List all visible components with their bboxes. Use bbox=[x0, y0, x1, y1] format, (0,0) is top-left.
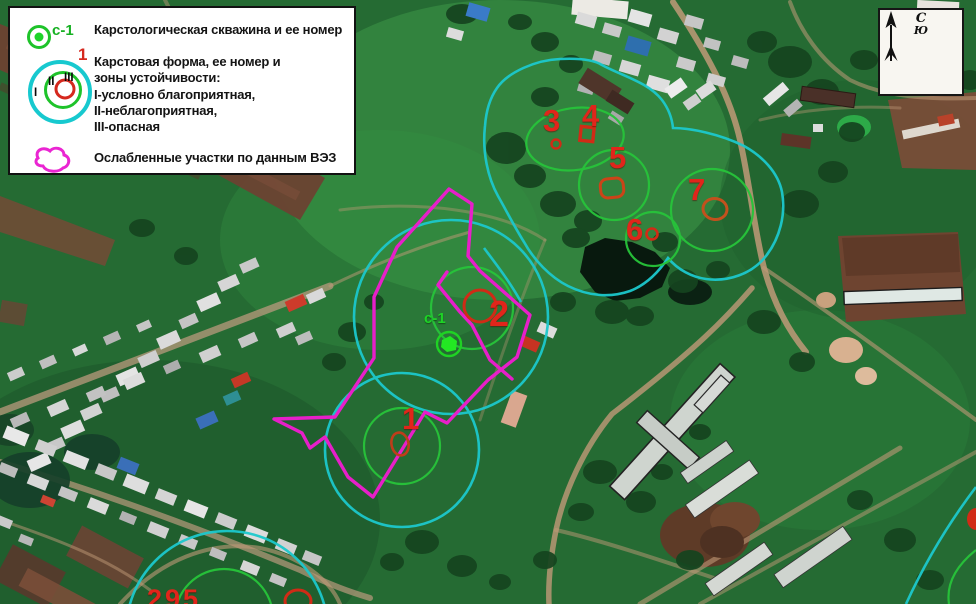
karst-form-legend-number: 1 bbox=[78, 46, 87, 63]
north-arrow-icon bbox=[880, 11, 902, 63]
karst-form-legend-line-3: I-условно благоприятная, bbox=[94, 87, 255, 103]
legend-zone-mark-1: I bbox=[34, 88, 37, 100]
karst-form-4-label: 4 bbox=[582, 100, 599, 131]
karst-form-legend-line-5: III-опасная bbox=[94, 119, 160, 135]
borehole-map-label: с-1 bbox=[424, 311, 446, 326]
karst-form-legend-line-1: Карстовая форма, ее номер и bbox=[94, 54, 280, 70]
legend-zone-mark-2: II bbox=[48, 77, 54, 89]
karst-form-legend-line-4: II-неблагоприятная, bbox=[94, 103, 217, 119]
karst-survey-map: 1 2 3 4 5 6 7 с-1 295 с-1 Карстологическ… bbox=[0, 0, 976, 604]
north-arrow-box: С Ю bbox=[878, 8, 964, 96]
karst-form-6-label: 6 bbox=[626, 214, 643, 245]
karst-form-2-label: 2 bbox=[489, 296, 509, 332]
karst-form-5-label: 5 bbox=[609, 142, 626, 173]
borehole-legend-label: Карстологическая скважина и ее номер bbox=[94, 22, 342, 38]
borehole-legend-id: с-1 bbox=[52, 23, 74, 38]
karst-form-1-label: 1 bbox=[402, 403, 419, 434]
weakened-area-legend-icon bbox=[30, 144, 74, 174]
karst-form-7-label: 7 bbox=[688, 174, 705, 205]
legend-panel: с-1 Карстологическая скважина и ее номер… bbox=[8, 6, 356, 175]
karst-form-legend-line-2: зоны устойчивости: bbox=[94, 70, 220, 86]
legend-zone-mark-3: III bbox=[64, 73, 74, 85]
cutoff-bottom-label: 295 bbox=[147, 586, 201, 604]
karst-form-3-label: 3 bbox=[543, 105, 560, 136]
weakened-area-legend-label: Ослабленные участки по данным ВЭЗ bbox=[94, 150, 336, 166]
